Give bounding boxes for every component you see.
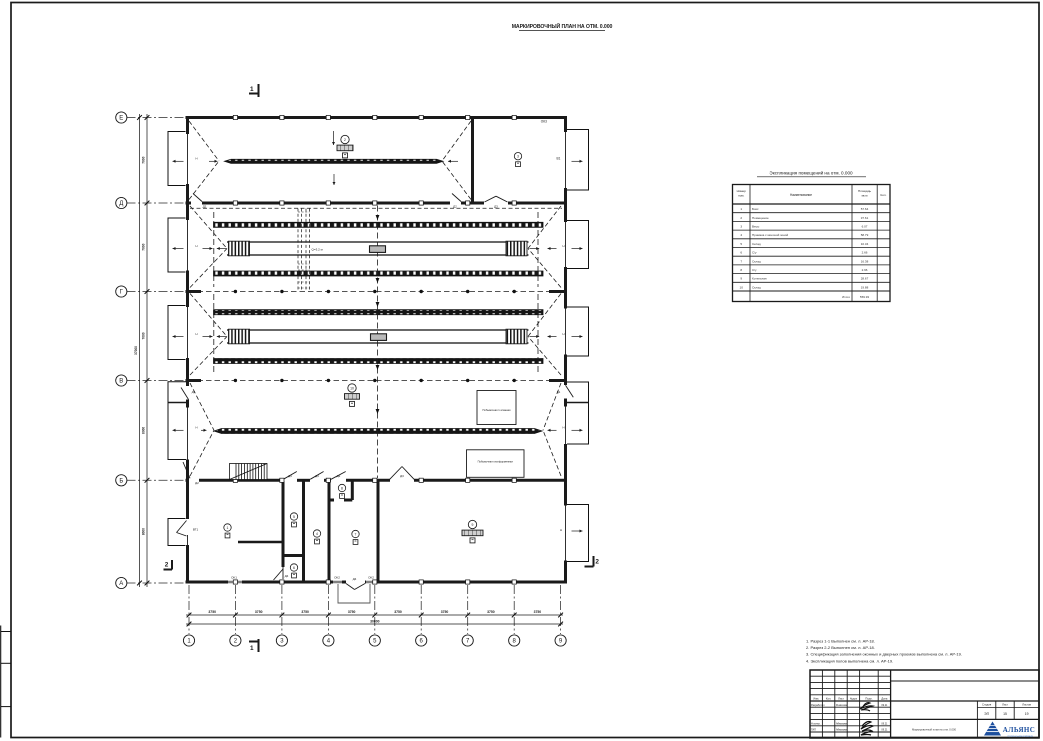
svg-text:8000: 8000 [141, 427, 145, 434]
svg-text:Склад: Склад [752, 285, 761, 289]
svg-text:ОК2: ОК2 [368, 575, 374, 579]
svg-text:58.79: 58.79 [861, 233, 869, 237]
svg-text:пом.: пом. [738, 193, 744, 197]
svg-text:Д: Д [119, 201, 123, 207]
svg-text:Экспликация помещений на отм.: Экспликация помещений на отм. 0.000 [769, 170, 853, 176]
svg-text:2: 2 [740, 216, 742, 220]
svg-text:ЭП: ЭП [984, 712, 989, 716]
svg-text:37.61: 37.61 [861, 216, 869, 220]
svg-text:Б: Б [119, 478, 123, 484]
svg-text:Д2: Д2 [337, 474, 341, 478]
svg-text:ОК2: ОК2 [334, 575, 340, 579]
svg-text:Кол.: Кол. [881, 193, 887, 197]
svg-text:9: 9 [472, 523, 474, 527]
svg-text:4. Экспликация полов выполнена: 4. Экспликация полов выполнена см. л. АР… [806, 658, 893, 663]
svg-text:09.21: 09.21 [881, 729, 888, 732]
svg-text:4: 4 [740, 233, 742, 237]
svg-text:В: В [119, 379, 123, 385]
svg-text:Д3: Д3 [400, 474, 404, 478]
svg-text:Д3: Д3 [288, 474, 292, 478]
svg-text:9: 9 [740, 277, 742, 281]
svg-text:Побывочная 1-этажная: Побывочная 1-этажная [483, 408, 512, 412]
svg-text:Н: Н [195, 157, 197, 161]
svg-text:№док: №док [850, 697, 858, 700]
svg-text:Подп.: Подп. [865, 696, 872, 700]
svg-text:1. Разрез 1-1 Выполнен см. л.: 1. Разрез 1-1 Выполнен см. л. АР-18. [806, 639, 875, 644]
svg-text:09.21: 09.21 [881, 704, 888, 707]
svg-text:2. Разрез 2-2 Выполнен см. л.: 2. Разрез 2-2 Выполнен см. л. АР-18. [806, 645, 875, 650]
svg-text:Д2: Д2 [195, 481, 199, 485]
svg-text:Н.контр.: Н.контр. [811, 722, 821, 725]
svg-text:кв.м: кв.м [862, 193, 868, 197]
svg-text:Д4: Д4 [285, 574, 289, 578]
svg-text:3. Спецификация заполнения око: 3. Спецификация заполнения оконных и две… [806, 652, 962, 657]
svg-text:ГИП: ГИП [811, 729, 816, 732]
svg-text:1: 1 [250, 645, 254, 652]
svg-text:3: 3 [740, 225, 742, 229]
svg-text:Айвазова: Айвазова [836, 729, 848, 732]
svg-text:С/у: С/у [752, 251, 757, 255]
svg-text:ОК3: ОК3 [541, 120, 547, 124]
svg-text:19.88: 19.88 [861, 285, 869, 289]
svg-text:Бокс: Бокс [752, 207, 759, 211]
svg-text:3750: 3750 [394, 610, 402, 614]
svg-text:Побывочная платформенная: Побывочная платформенная [478, 460, 514, 464]
svg-text:Д4: Д4 [353, 577, 357, 581]
svg-text:3: 3 [517, 155, 519, 159]
svg-text:3750: 3750 [208, 610, 216, 614]
svg-text:7: 7 [355, 532, 357, 536]
svg-text:Айвазова: Айвазова [836, 722, 848, 725]
svg-text:Н: Н [195, 244, 197, 248]
svg-text:Д2: Д2 [203, 204, 207, 208]
svg-text:Д2: Д2 [453, 204, 457, 208]
svg-text:Дата: Дата [881, 696, 887, 700]
svg-text:28.67: 28.67 [861, 277, 869, 281]
svg-text:19: 19 [1025, 712, 1029, 716]
svg-text:Н: Н [195, 426, 197, 430]
svg-text:Разработал: Разработал [811, 704, 825, 707]
svg-text:Лист: Лист [1002, 703, 1009, 707]
svg-text:С/у: С/у [752, 268, 757, 272]
svg-text:10: 10 [350, 386, 354, 390]
svg-text:2.96: 2.96 [862, 268, 868, 272]
svg-text:09.21: 09.21 [881, 722, 888, 725]
svg-text:строительная компания: строительная компания [1007, 736, 1033, 738]
svg-text:1: 1 [227, 526, 229, 530]
svg-text:Кол.: Кол. [826, 696, 832, 700]
svg-text:Н: Н [195, 332, 197, 336]
svg-text:6: 6 [293, 566, 295, 570]
svg-text:Н: Н [562, 244, 564, 248]
svg-text:5: 5 [740, 242, 742, 246]
svg-text:2.66: 2.66 [862, 251, 868, 255]
svg-text:30000: 30000 [370, 619, 380, 623]
svg-text:3750: 3750 [301, 610, 309, 614]
svg-text:3750: 3750 [255, 610, 263, 614]
svg-text:4: 4 [316, 532, 318, 536]
svg-text:1: 1 [740, 207, 742, 211]
svg-text:5: 5 [293, 515, 295, 519]
svg-text:3750: 3750 [441, 610, 449, 614]
svg-text:3750: 3750 [487, 610, 495, 614]
svg-text:Е: Е [119, 116, 123, 122]
svg-text:7000: 7000 [141, 156, 145, 163]
svg-text:Д3: Д3 [494, 205, 498, 209]
svg-text:Н: Н [562, 332, 564, 336]
svg-text:Н: Н [560, 528, 562, 532]
svg-text:Стадия: Стадия [982, 703, 992, 707]
svg-text:15: 15 [1003, 712, 1007, 716]
svg-text:Итого: Итого [842, 295, 850, 299]
svg-text:6.07: 6.07 [862, 225, 868, 229]
svg-text:8000: 8000 [141, 528, 145, 535]
svg-text:Лист: Лист [838, 696, 845, 700]
svg-text:Приемка с моечной зоной: Приемка с моечной зоной [752, 233, 788, 237]
svg-text:10.34: 10.34 [861, 242, 869, 246]
svg-text:Склад: Склад [752, 259, 761, 263]
svg-text:7000: 7000 [141, 243, 145, 250]
svg-text:Q=3.2 м: Q=3.2 м [312, 247, 323, 251]
svg-text:ОК1: ОК1 [231, 575, 237, 579]
svg-text:2: 2 [595, 559, 599, 566]
svg-text:МАРКИРОВОЧНЫЙ ПЛАН НА ОТМ. 0.0: МАРКИРОВОЧНЫЙ ПЛАН НА ОТМ. 0.000 [512, 22, 613, 30]
svg-text:Площадь: Площадь [858, 189, 871, 193]
svg-text:Котельная: Котельная [752, 277, 767, 281]
svg-text:В1: В1 [557, 157, 561, 161]
svg-text:16.38: 16.38 [861, 259, 869, 263]
svg-text:7000: 7000 [141, 332, 145, 339]
svg-text:Склад: Склад [752, 242, 761, 246]
svg-text:1: 1 [250, 86, 254, 93]
svg-text:559.93: 559.93 [860, 295, 870, 299]
svg-text:2: 2 [165, 562, 169, 569]
svg-text:Д3: Д3 [315, 474, 319, 478]
svg-text:37000: 37000 [134, 346, 138, 355]
svg-text:10: 10 [739, 285, 743, 289]
svg-text:7: 7 [740, 259, 742, 263]
svg-text:Помещение: Помещение [752, 216, 769, 220]
svg-text:ВТ1: ВТ1 [193, 528, 199, 532]
svg-text:Номер: Номер [737, 189, 747, 193]
svg-text:8: 8 [740, 268, 742, 272]
svg-text:2: 2 [344, 138, 346, 142]
svg-text:Изм.: Изм. [813, 696, 819, 700]
svg-text:Весы: Весы [752, 225, 759, 229]
svg-text:АЛЬЯНС: АЛЬЯНС [1003, 726, 1035, 734]
svg-text:3750: 3750 [348, 610, 356, 614]
svg-text:Листов: Листов [1022, 703, 1031, 707]
svg-text:6: 6 [740, 251, 742, 255]
svg-text:Наименование: Наименование [790, 193, 812, 197]
svg-text:Н: Н [562, 426, 564, 430]
svg-text:Маркировочный план на отм. 0.0: Маркировочный план на отм. 0.000 [912, 728, 957, 732]
svg-text:8: 8 [341, 486, 343, 490]
svg-text:3750: 3750 [534, 610, 542, 614]
svg-text:57.64: 57.64 [861, 207, 869, 211]
svg-text:А: А [119, 581, 123, 587]
svg-text:Ремизова: Ремизова [836, 704, 848, 707]
